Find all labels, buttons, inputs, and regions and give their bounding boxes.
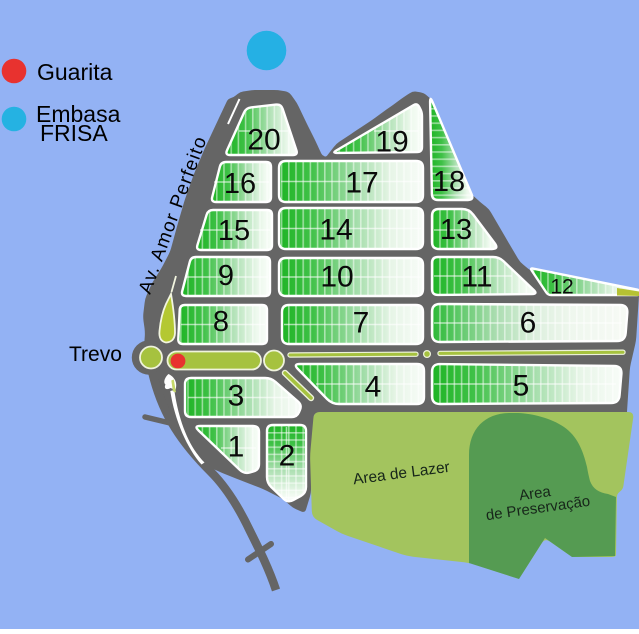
- svg-text:18: 18: [433, 166, 465, 198]
- svg-text:10: 10: [320, 261, 353, 294]
- svg-text:16: 16: [224, 168, 256, 200]
- svg-text:4: 4: [365, 371, 382, 404]
- svg-text:19: 19: [375, 126, 408, 159]
- svg-text:Trevo: Trevo: [69, 343, 122, 366]
- svg-text:7: 7: [353, 307, 370, 340]
- svg-text:9: 9: [218, 260, 234, 292]
- svg-text:15: 15: [218, 215, 250, 247]
- svg-text:2: 2: [279, 440, 296, 473]
- svg-text:5: 5: [513, 370, 530, 403]
- svg-text:FRISA: FRISA: [40, 120, 108, 146]
- svg-text:17: 17: [345, 167, 378, 200]
- svg-text:20: 20: [247, 124, 280, 157]
- svg-text:3: 3: [228, 380, 245, 413]
- svg-text:8: 8: [213, 306, 229, 338]
- svg-text:12: 12: [550, 276, 573, 299]
- svg-text:1: 1: [228, 431, 245, 464]
- svg-text:6: 6: [520, 307, 537, 340]
- svg-text:13: 13: [440, 214, 472, 246]
- svg-text:Guarita: Guarita: [37, 59, 113, 85]
- svg-text:14: 14: [319, 214, 352, 247]
- svg-text:11: 11: [461, 261, 492, 294]
